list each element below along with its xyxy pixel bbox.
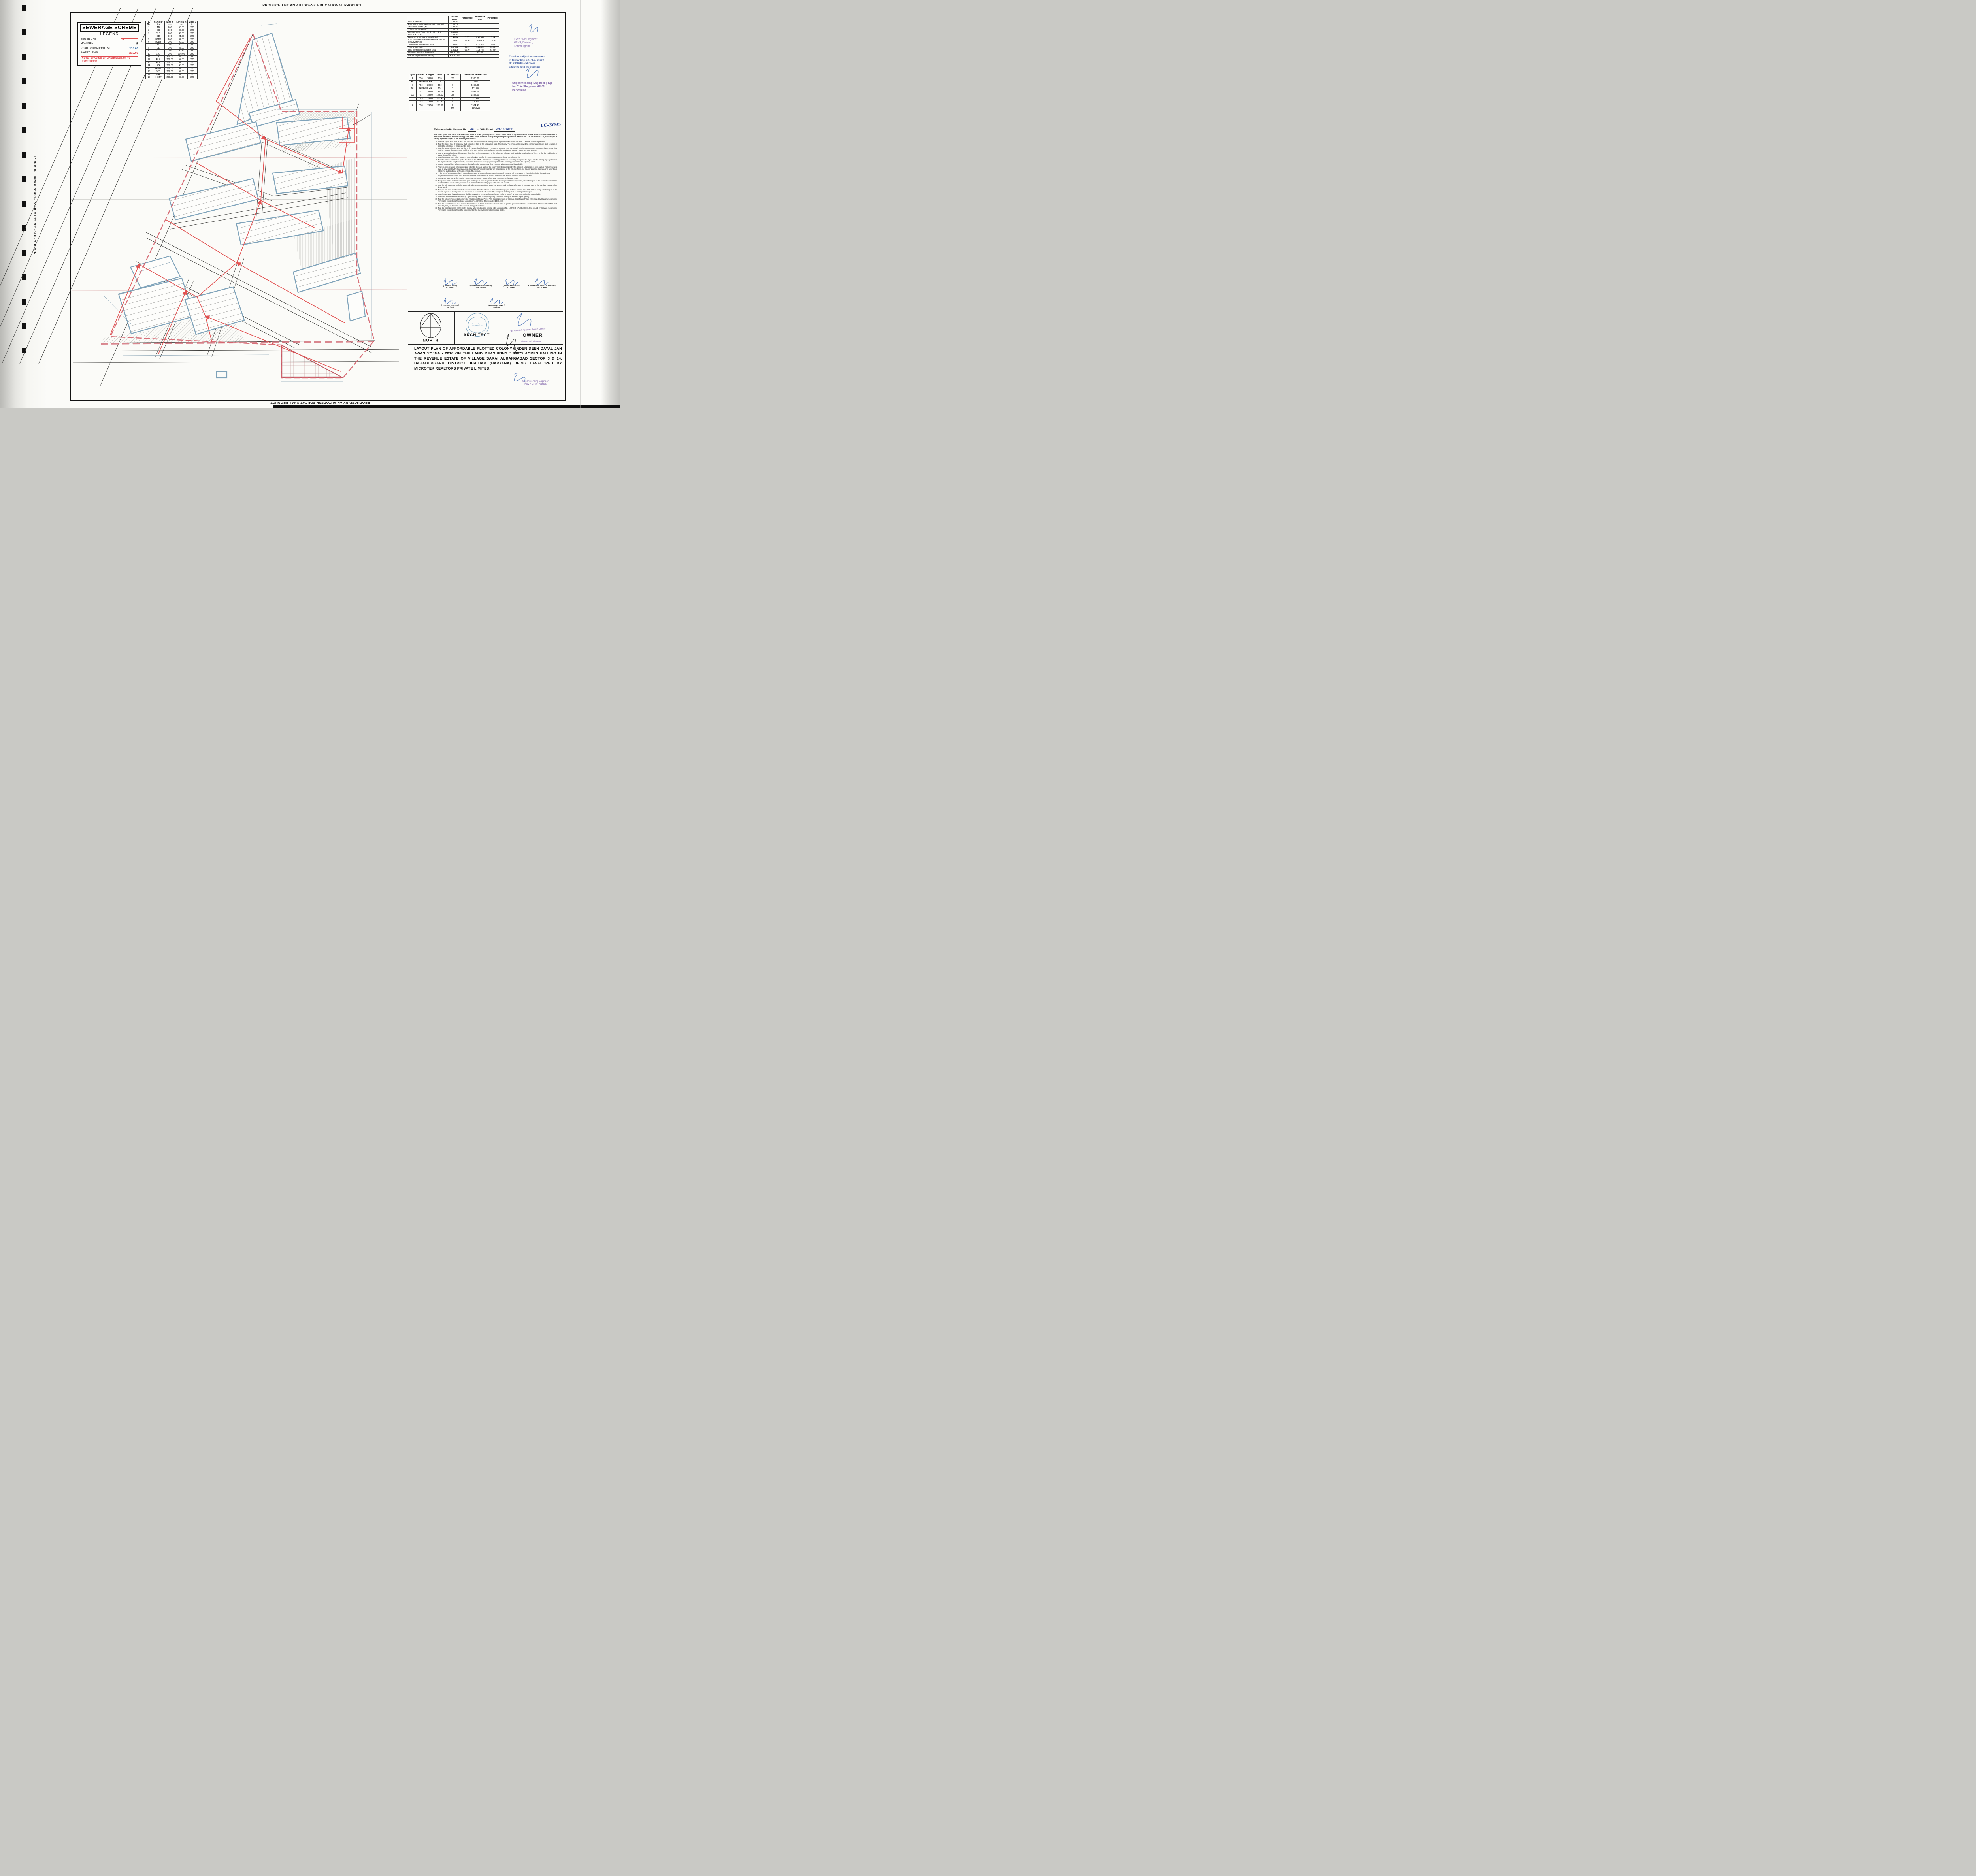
north-label: NORTH	[423, 339, 439, 343]
sewer-cell: 46.00	[175, 32, 187, 35]
plot-cell: 15.00	[425, 97, 435, 101]
legend-il-label: INVERT LEVEL	[81, 51, 98, 54]
plot-type-table: TypeWidthLengthAreaNo. of PlotsTotal Are…	[409, 74, 490, 111]
licence-condition: That the rain water harvesting system sh…	[438, 193, 557, 195]
signatory-title: CTP (HR)	[496, 287, 527, 288]
area-cell	[461, 28, 473, 31]
plot-cell: 4	[445, 101, 461, 104]
sewer-cell: 3	[146, 32, 152, 35]
licence-condition: At the time of demarcation plan, if requ…	[438, 172, 557, 174]
licence-condition: No plot will derive an access from less …	[438, 175, 557, 177]
plot-cell: B1	[409, 87, 417, 91]
sewer-cell: 12	[146, 58, 152, 61]
signatory-title: DTCP (HR)	[527, 287, 558, 288]
table-row: 18H-STP200.0045.00220	[146, 76, 198, 79]
se-rohtak-stamp: Superintending EngineerHSVP Circle, Roht…	[522, 380, 549, 386]
licence-condition: That the colonizer/owner shall ensure th…	[438, 203, 557, 207]
area-cell	[461, 55, 473, 57]
owner-label: OWNER	[523, 332, 543, 338]
table-row: Maximum permissible density400.00000	[407, 55, 499, 57]
area-cell: 10.18	[487, 39, 499, 44]
licence-date: 03-10-2018	[494, 128, 515, 132]
sewer-cell: 10	[146, 53, 152, 55]
sewer-cell: 220	[187, 61, 197, 64]
signature	[530, 25, 538, 32]
table-row: D7.2315.00108.458867.60	[409, 97, 490, 101]
sewer-cell: 92.00	[175, 38, 187, 41]
plot-cell: 1	[445, 87, 461, 91]
sewer-cell: CD	[152, 35, 164, 38]
signatory: (RAM AVTAR BASSI)AD (HQ)	[435, 296, 466, 308]
sewer-cell: 220	[187, 47, 197, 49]
sewer-cell: 220	[187, 64, 197, 67]
signatory: (K.MAKRAND PANDURANG, IAS)DTCP (HR)	[527, 276, 558, 288]
sewer-cell: 200	[164, 29, 175, 32]
licence-no: 69	[468, 128, 476, 132]
sewer-cell: 2	[146, 29, 152, 32]
sewer-cell: 21.00	[175, 35, 187, 38]
signatory-title: DTP (HQ)	[435, 287, 466, 288]
area-col-header	[407, 16, 449, 21]
sewer-cell: C1C	[152, 32, 164, 35]
area-cell	[487, 52, 499, 55]
plot-cell: 18.00	[425, 94, 435, 98]
licence-condition: The portion of the sector/development pl…	[438, 180, 557, 184]
area-cell	[487, 26, 499, 29]
sewer-cell: 200	[164, 41, 175, 43]
table-row: C17.1418.00128.52303855.60	[409, 94, 490, 98]
plot-cell: 296.64	[460, 101, 490, 104]
band-divider	[454, 311, 455, 344]
table-row: 4CD20021.00220	[146, 35, 198, 38]
plot-cell: B	[409, 84, 417, 87]
plot-cell: 22	[445, 77, 461, 81]
table-row: 3C1C20046.00220	[146, 32, 198, 35]
signatory: (DEVENDRA NIMBOKAR)STP (M) HQ	[466, 276, 496, 288]
area-cell	[487, 55, 499, 57]
signatory: (JITENDER SIHAG)CTP (HR)	[496, 276, 527, 288]
area-cell	[487, 21, 499, 24]
licence-condition: That this Layout Plan shall be read in c…	[438, 141, 557, 143]
sewer-cell: 200.00	[164, 76, 175, 79]
signatory: (LALIT KUMAR)DTP (HQ)	[435, 276, 466, 288]
plot-cell: 30	[445, 94, 461, 98]
area-cell: 7.50	[461, 36, 473, 39]
sewer-cell: 17	[146, 73, 152, 76]
plot-cell: A1	[409, 81, 417, 84]
sewer-cell: F1F	[152, 58, 164, 61]
sewer-cell: 45.00	[175, 76, 187, 79]
sewer-cell: 52.00	[175, 73, 187, 76]
plot-cell: 19.50	[425, 104, 435, 107]
sewer-cell: 57.00	[175, 70, 187, 73]
area-col-header: Proposed area	[473, 16, 487, 21]
sewer-cell: EF	[152, 56, 164, 58]
plot-cell: 7	[445, 84, 461, 87]
sewer-cell: BC	[152, 29, 164, 32]
checked-stamp: Checked subject to commentsin forwarding…	[509, 55, 545, 69]
sewer-cell: 14	[146, 64, 152, 67]
sewer-cell: 220	[187, 76, 197, 79]
plot-cell: 1	[445, 81, 461, 84]
area-cell	[473, 21, 487, 24]
sewer-cell: E1E	[152, 50, 164, 53]
sewer-cell: D2D3	[152, 41, 164, 43]
sewer-col-header: S. No.	[146, 21, 152, 26]
sewer-cell: 52.00	[175, 61, 187, 64]
table-row: 12F1F200.0054.00220	[146, 58, 198, 61]
legend-manhole-label: MANHOLE	[81, 42, 93, 45]
signatory: (BALWANT SINGH)SD (HQ)	[481, 296, 512, 308]
plot-cell: 867.60	[460, 97, 490, 101]
sewer-cell: 22.00	[175, 41, 187, 43]
legend-rfl-label: ROAD FORMATION LEVEL	[81, 47, 112, 50]
area-cell	[487, 23, 499, 26]
legend-subtitle: LEGEND	[78, 32, 141, 36]
conditions-list: That this Layout Plan shall be read in c…	[438, 141, 557, 211]
table-row: B1IRREGULAR1011101.00	[409, 87, 490, 91]
area-cell: 8.14	[487, 36, 499, 39]
plot-cell: 135	[435, 77, 445, 81]
sewer-cell: 200	[164, 35, 175, 38]
plot-cell: 7.08	[416, 104, 425, 107]
area-cell	[461, 23, 473, 26]
sewer-cell: 1	[146, 26, 152, 29]
sewer-cell: 6	[146, 41, 152, 43]
licence-condition: That you will have no objection to the r…	[438, 189, 557, 193]
signature	[517, 313, 531, 326]
plot-cell: 77	[435, 81, 445, 84]
table-row: A1IRREGULAR77177.00	[409, 81, 490, 84]
plot-cell: 108.45	[435, 97, 445, 101]
table-row: 5D1D320092.00220	[146, 38, 198, 41]
sewer-cell: 16	[146, 70, 152, 73]
table-row: A7.5018.00135222970.00	[409, 77, 490, 81]
table-row: C7.1419.00135.66293934.14	[409, 91, 490, 94]
table-row: 11EF200.0045.00220	[146, 56, 198, 58]
table-row: 7D3D20022.00220	[146, 44, 198, 47]
sewer-cell: 220	[187, 32, 197, 35]
sewer-col-header: Size in mm	[164, 21, 175, 26]
sewer-cell: 200.00	[164, 58, 175, 61]
signature	[526, 68, 538, 78]
licence-condition: All green belts provided in the layout p…	[438, 166, 557, 172]
sewer-cell: 220	[187, 73, 197, 76]
sewer-cell: DE	[152, 47, 164, 49]
plot-cell: 1050.00	[460, 84, 490, 87]
plot-cell: 12.00	[425, 101, 435, 104]
scanned-drawing-page: PRODUCED BY AN AUTODESK EDUCATIONAL PROD…	[0, 0, 620, 408]
area-cell: 0.47740	[473, 36, 487, 39]
signatories-row-2: (RAM AVTAR BASSI)AD (HQ)(BALWANT SINGH)S…	[435, 296, 557, 308]
sewer-cell: 200.00	[164, 64, 175, 67]
sewer-cell: 220	[187, 67, 197, 70]
legend-sewer-label: SEWER LINE	[81, 38, 96, 40]
sewer-cell: 200	[164, 44, 175, 47]
sewer-cell: 200.00	[164, 70, 175, 73]
sewer-cell: 200	[164, 32, 175, 35]
sewer-cell: AB	[152, 26, 164, 29]
plot-cell: 18.00	[425, 77, 435, 81]
plot-cell	[435, 107, 445, 111]
legend-note: NOTE:- SPACING OF MANHOLES NOT TO EXCEED…	[81, 56, 138, 64]
plot-cell: IRREGULAR	[416, 87, 435, 91]
licence-condition: That the colonizer/owner shall strictly …	[438, 207, 557, 211]
licence-condition: That the colonizer shall abide by the di…	[438, 159, 557, 163]
sewer-cell: 220	[187, 70, 197, 73]
plot-cell: 3855.60	[460, 94, 490, 98]
area-col-header: Percentage	[461, 16, 473, 21]
sewer-cell: 200	[164, 50, 175, 53]
table-row: 9E1E2005.00220	[146, 50, 198, 53]
area-cell: 10% area to be transferred free of cost …	[407, 39, 449, 44]
signatory-title: STP (M) HQ	[466, 287, 496, 288]
plot-cell: 138.06	[435, 104, 445, 107]
sewer-cell: G2G	[152, 70, 164, 73]
plot-cell: 101	[435, 87, 445, 91]
plot-cell: 2970.00	[460, 77, 490, 81]
lc-number: LC-3695	[541, 122, 561, 128]
sewer-cell: 220	[187, 56, 197, 58]
plot-cell: 6.18	[416, 101, 425, 104]
table-row: Minimum permissible density240.00000253.…	[407, 52, 499, 55]
licence-condition: That for proper planning and integration…	[438, 152, 557, 156]
plot-cell: 1104.48	[460, 104, 490, 107]
table-row: B7.5020.0015071050.00	[409, 84, 490, 87]
licence-condition: That the revenue rasta falling in the co…	[438, 156, 557, 158]
north-arrow-icon	[420, 313, 441, 338]
sewer-line-symbol	[121, 38, 138, 39]
area-cell: 64.09	[487, 49, 499, 52]
table-row: 6D2D320022.00220	[146, 41, 198, 43]
sewer-cell: 7	[146, 44, 152, 47]
sewer-cell: 54.00	[175, 58, 187, 61]
sewer-cell: H-STP	[152, 76, 164, 79]
sewer-cell: 220	[187, 53, 197, 55]
sewer-cell: 22.00	[175, 44, 187, 47]
sewer-cell: 200.00	[164, 61, 175, 64]
licence-condition: That no property/plot shall derive acces…	[438, 163, 557, 165]
table-row: 14FG200.0043.00220	[146, 64, 198, 67]
area-cell	[473, 28, 487, 31]
sewer-cell: 43.00	[175, 64, 187, 67]
executive-engineer-stamp: Executive Engineer,HSVP, Division,Bahadu…	[514, 38, 538, 48]
plot-cell: 77.00	[460, 81, 490, 84]
area-cell	[473, 23, 487, 26]
owner-signatory-stamp: Director/Auth. Signatory	[521, 341, 541, 343]
plot-cell: A	[409, 77, 417, 81]
plot-cell: D	[409, 97, 417, 101]
sewer-cell: 43.00	[175, 47, 187, 49]
architect-stamp-number: CA/2008/42063	[468, 325, 486, 326]
area-cell: Minimum permissible density	[407, 52, 449, 55]
plot-cell	[409, 107, 417, 111]
sewer-cell: 18	[146, 76, 152, 79]
sewer-cell: 54.00	[175, 67, 187, 70]
plot-cell: 7.14	[416, 94, 425, 98]
area-cell: 253.28	[473, 52, 487, 55]
sewer-cell: 200	[164, 26, 175, 29]
plot-cell: 150	[435, 84, 445, 87]
sewer-cell: 220	[187, 41, 197, 43]
table-row: F7.0819.50138.0681104.48	[409, 104, 490, 107]
licence-condition: That the coloniser/owner shall use only …	[438, 196, 557, 198]
sewer-cell: 200	[164, 53, 175, 55]
plot-cell: 14256.46	[460, 107, 490, 111]
table-row: 15G1G2200.0054.00220	[146, 67, 198, 70]
table-row: 1AB20050.00220	[146, 26, 198, 29]
sewer-col-header: Name of Line	[152, 21, 164, 26]
area-cell: Maximum permissible density	[407, 55, 449, 57]
sewer-cell: GH	[152, 73, 164, 76]
block-C-15	[169, 179, 258, 220]
plot-cell: 19.00	[425, 91, 435, 94]
plot-col-header: Total Area under Plots	[460, 74, 490, 77]
licence-condition: Any excess area over and above the permi…	[438, 177, 557, 179]
sewer-col-header: Slope 1 in	[187, 21, 197, 26]
plot-col-header: Area	[435, 74, 445, 77]
sewer-cell: 200.00	[164, 73, 175, 76]
licence-condition: That the demarcation plans as per site o…	[438, 147, 557, 151]
table-row: 17GH200.0052.00220	[146, 73, 198, 76]
table-row: 13F2F200.0052.00220	[146, 61, 198, 64]
licence-line: To be read with Licence No. 69 of 2018 D…	[434, 128, 556, 131]
sewer-cell: 220	[187, 26, 197, 29]
sewer-cell: FG	[152, 64, 164, 67]
sewer-cell: 40.00	[175, 29, 187, 32]
sewer-cell: 11	[146, 56, 152, 58]
area-cell: 65.00	[461, 49, 473, 52]
architect-label: ARCHITECT	[464, 333, 490, 337]
plot-cell: 29	[445, 91, 461, 94]
plot-cell: 20.00	[425, 84, 435, 87]
area-cell	[461, 26, 473, 29]
area-cell: 0.43974	[448, 36, 461, 39]
manhole-symbol: ⊠	[135, 41, 138, 45]
rfl-value: 214.00	[129, 47, 138, 50]
sewer-cell: 13	[146, 61, 152, 64]
plot-cell: 135.66	[435, 91, 445, 94]
sewer-cell: 50.00	[175, 26, 187, 29]
legend-box: SEWERAGE SCHEME LEGEND SEWER LINE MANHOL…	[77, 22, 141, 66]
plot-cell: E	[409, 101, 417, 104]
licence-condition: That the colonizer/owner shall ensure th…	[438, 198, 557, 202]
plot-col-header: Type	[409, 74, 417, 77]
sewer-cell: G1G2	[152, 67, 164, 70]
plot-cell: 74.16	[435, 101, 445, 104]
plot-cell: 7.23	[416, 97, 425, 101]
sewer-cell: 220	[187, 50, 197, 53]
sewer-cell: F2F	[152, 61, 164, 64]
sewer-cell: 45.00	[175, 56, 187, 58]
table-row: 16G2G200.0057.00220	[146, 70, 198, 73]
sewer-line-table: S. No.Name of LineSize in mmLength in mS…	[145, 21, 198, 79]
plot-cell: 7.50	[416, 84, 425, 87]
licence-mid: of 2018 Dated	[477, 128, 494, 131]
band-divider	[499, 311, 499, 344]
area-cell	[473, 26, 487, 29]
plot-cell: 128.52	[435, 94, 445, 98]
sewer-cell: 5.00	[175, 50, 187, 53]
area-cell	[473, 31, 487, 34]
plot-cell: 8	[445, 104, 461, 107]
sewer-cell: 220	[187, 44, 197, 47]
sewer-cell: 108.00	[175, 53, 187, 55]
table-row: 8DE20043.00220	[146, 47, 198, 49]
sewer-cell: 200	[164, 47, 175, 49]
area-cell: 0.58632	[448, 39, 461, 44]
table-row: E6.1812.0074.164296.64	[409, 101, 490, 104]
plot-cell: IRREGULAR	[416, 81, 435, 84]
plot-cell: 101.00	[460, 87, 490, 91]
sewer-cell: 200.00	[164, 67, 175, 70]
block-C1-16	[186, 122, 261, 161]
area-cell: 10.00	[461, 39, 473, 44]
table-row: 10% area to be transferred free of cost …	[407, 39, 499, 44]
table-row: 11014256.46	[409, 107, 490, 111]
plot-cell	[416, 107, 425, 111]
sewer-cell: 200	[164, 38, 175, 41]
plot-cell: F	[409, 104, 417, 107]
sewer-cell: 220	[187, 29, 197, 32]
sewer-col-header: Length in m	[175, 21, 187, 26]
plot-cell: C1	[409, 94, 417, 98]
il-value: 213.00	[129, 51, 138, 55]
plot-cell: 7.50	[416, 77, 425, 81]
area-statement-table: Area in acresPercentageProposed areaPerc…	[407, 16, 499, 58]
sewer-cell: 9	[146, 50, 152, 53]
area-cell	[487, 28, 499, 31]
signatory-title: SD (HQ)	[481, 306, 512, 308]
sewer-cell: E2E	[152, 53, 164, 55]
area-cell	[461, 21, 473, 24]
area-cell	[487, 31, 499, 34]
band-border	[408, 311, 563, 312]
licence-intro-paragraph: That this Layout plan for an area measur…	[434, 134, 557, 140]
licence-conditions: That this Layout plan for an area measur…	[434, 134, 557, 211]
sewer-cell: 15	[146, 67, 152, 70]
area-cell: 400.00000	[448, 55, 461, 57]
area-cell: 0.596875	[473, 39, 487, 44]
area-col-header: Area in acres	[448, 16, 461, 21]
area-col-header: Percentage	[487, 16, 499, 21]
plot-cell: 7.14	[416, 91, 425, 94]
sewer-cell: 220	[187, 35, 197, 38]
area-cell	[461, 52, 473, 55]
plot-col-header: Length	[425, 74, 435, 77]
licence-condition: That the plotted area of the colony shal…	[438, 143, 557, 147]
signatories-row-1: (LALIT KUMAR)DTP (HQ)(DEVENDRA NIMBOKAR)…	[435, 276, 557, 288]
table-row: 2BC20040.00220	[146, 29, 198, 32]
area-cell: 240.00000	[448, 52, 461, 55]
plot-cell	[425, 107, 435, 111]
sewer-cell: 220	[187, 58, 197, 61]
licence-pre: To be read with Licence No.	[434, 128, 467, 131]
licence-condition: That the odd size plots are being approv…	[438, 184, 557, 188]
band-border	[408, 344, 563, 345]
sewer-cell: 220	[187, 38, 197, 41]
sewer-cell: D1D3	[152, 38, 164, 41]
sewer-cell: 8	[146, 47, 152, 49]
signatory-title: AD (HQ)	[435, 306, 466, 308]
plot-cell: 8	[445, 97, 461, 101]
sewer-cell: 5	[146, 38, 152, 41]
sewer-cell: D3D	[152, 44, 164, 47]
plot-col-header: Width	[416, 74, 425, 77]
plot-cell: 110	[445, 107, 461, 111]
area-cell	[473, 55, 487, 57]
legend-title: SEWERAGE SCHEME	[80, 24, 139, 32]
